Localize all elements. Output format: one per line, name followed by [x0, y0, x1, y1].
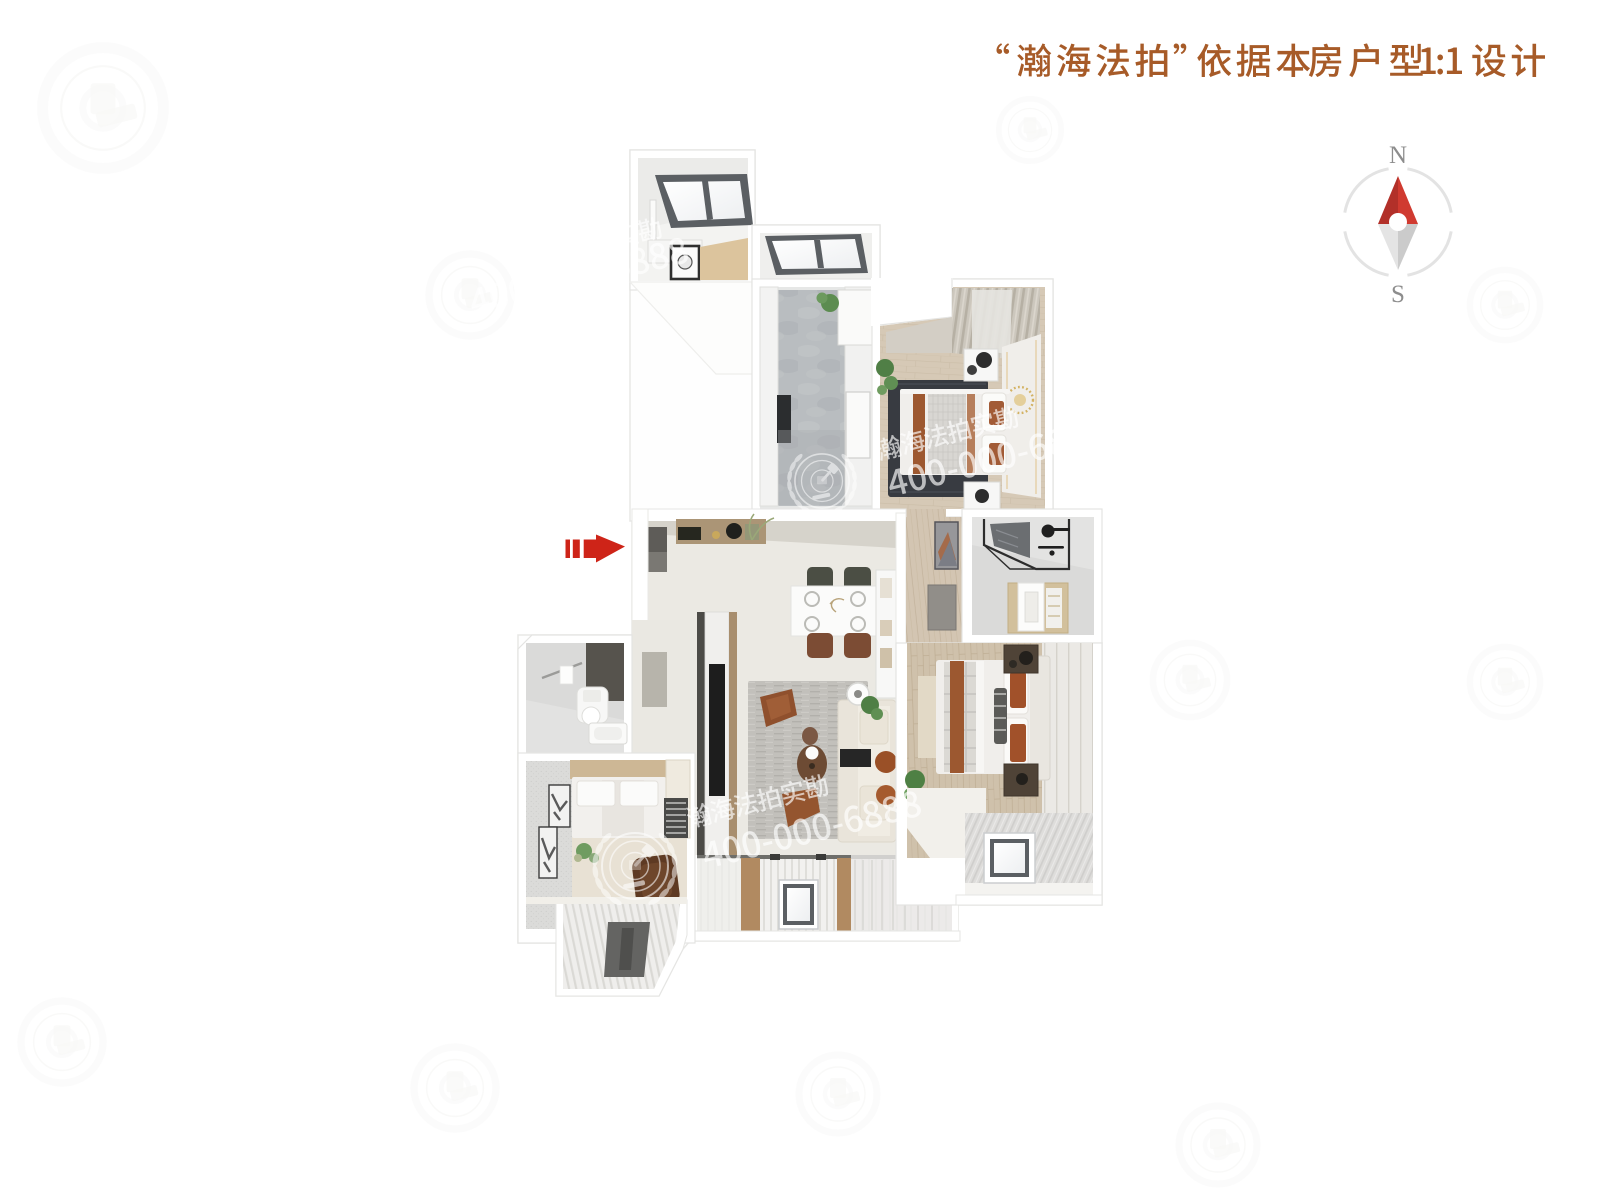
svg-text:N: N — [1389, 142, 1407, 169]
svg-text:S: S — [1391, 281, 1405, 308]
